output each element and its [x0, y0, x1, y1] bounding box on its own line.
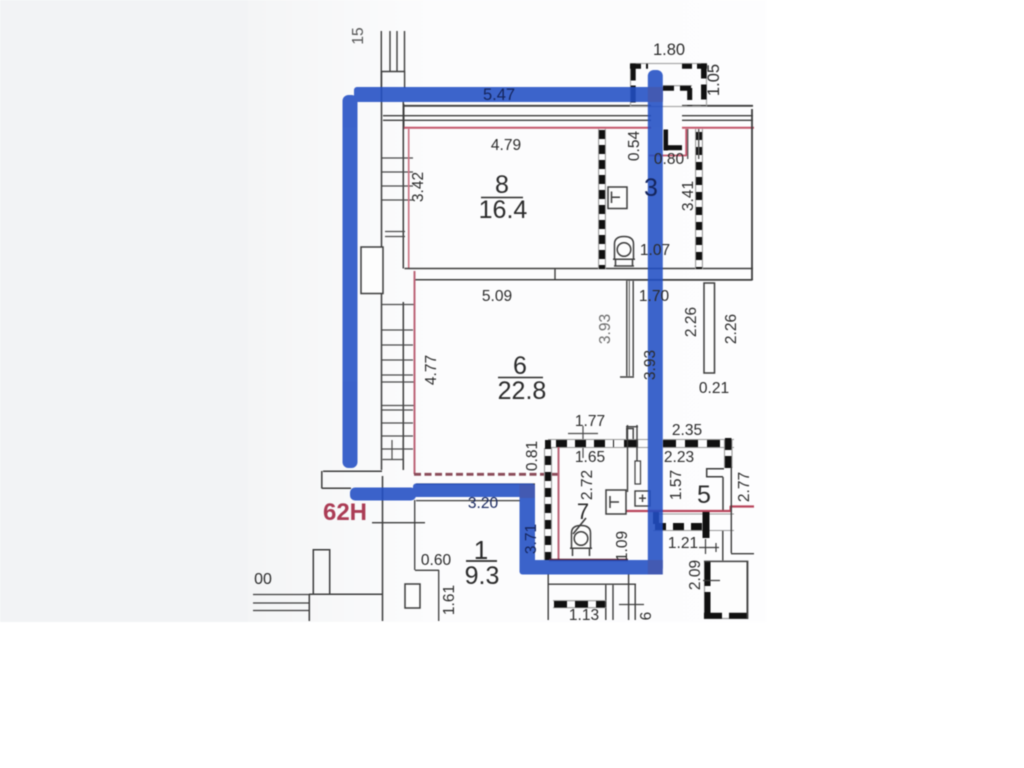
svg-text:62Н: 62Н: [323, 499, 367, 526]
svg-text:0.54: 0.54: [626, 131, 643, 162]
svg-text:1.21: 1.21: [668, 535, 698, 552]
svg-text:2.35: 2.35: [672, 422, 702, 439]
svg-text:3.41: 3.41: [680, 181, 697, 211]
svg-text:15: 15: [350, 27, 367, 44]
svg-text:8: 8: [495, 171, 509, 199]
svg-text:1.80: 1.80: [653, 41, 685, 59]
svg-text:2.23: 2.23: [664, 449, 694, 466]
svg-text:2.26: 2.26: [723, 314, 740, 344]
svg-text:3.93: 3.93: [642, 350, 659, 380]
svg-text:3.71: 3.71: [523, 524, 540, 554]
svg-text:5.47: 5.47: [483, 86, 515, 104]
svg-text:4.77: 4.77: [423, 355, 440, 385]
svg-text:1.77: 1.77: [575, 413, 605, 430]
svg-text:2.09: 2.09: [687, 560, 704, 590]
svg-text:1.65: 1.65: [575, 449, 605, 466]
svg-text:1.07: 1.07: [640, 242, 670, 259]
svg-text:0.60: 0.60: [421, 552, 452, 569]
svg-text:1.05: 1.05: [705, 64, 723, 96]
svg-text:5: 5: [697, 481, 711, 509]
svg-text:2.72: 2.72: [579, 470, 596, 500]
svg-text:1.09: 1.09: [614, 531, 631, 561]
svg-text:0.80: 0.80: [654, 151, 685, 168]
svg-text:1.70: 1.70: [639, 288, 670, 305]
svg-text:1.13: 1.13: [569, 607, 599, 624]
svg-text:6: 6: [513, 352, 527, 380]
svg-text:1.57: 1.57: [668, 470, 685, 500]
svg-text:2.77: 2.77: [736, 472, 753, 502]
svg-text:3: 3: [644, 174, 658, 202]
svg-text:9.3: 9.3: [465, 562, 500, 590]
svg-text:3.93: 3.93: [597, 314, 614, 344]
svg-text:3.42: 3.42: [410, 172, 427, 202]
svg-text:7: 7: [577, 499, 589, 524]
svg-text:22.8: 22.8: [498, 377, 547, 405]
svg-text:2.26: 2.26: [683, 307, 700, 337]
svg-text:0.81: 0.81: [524, 441, 541, 471]
svg-text:0.21: 0.21: [699, 380, 729, 397]
svg-text:5.09: 5.09: [482, 288, 512, 305]
svg-text:4.79: 4.79: [491, 137, 521, 154]
svg-text:1.61: 1.61: [441, 585, 458, 615]
svg-text:16.4: 16.4: [479, 196, 528, 224]
svg-text:00: 00: [254, 571, 272, 588]
svg-text:6: 6: [638, 612, 655, 621]
svg-text:3.20: 3.20: [468, 495, 499, 512]
